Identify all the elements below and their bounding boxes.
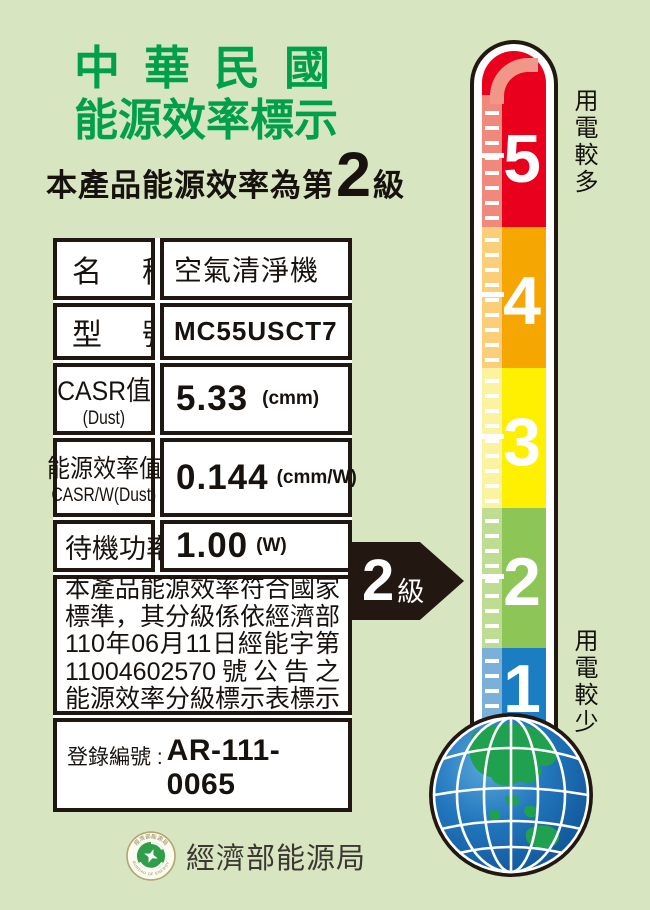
thermometer: 5 4 3 2 bbox=[470, 40, 558, 740]
table-row-eff-label-cell: 能源效率值 CASR/W(Dust) bbox=[53, 438, 155, 517]
notice-line: 110年06月11日經能字第 bbox=[65, 631, 340, 659]
casr-unit: (cmm) bbox=[262, 388, 319, 410]
name-label: 名稱 bbox=[57, 247, 151, 291]
eff-label-sub: CASR/W(Dust) bbox=[52, 485, 157, 507]
grade-statement-prefix: 本產品能源效率為第 bbox=[46, 160, 334, 205]
casr-label: CASR值 bbox=[57, 369, 151, 408]
table-row-name-label-cell: 名稱 bbox=[53, 238, 155, 300]
eff-unit: (cmm/W) bbox=[277, 467, 357, 489]
table-row-eff-value-cell: 0.144 (cmm/W) bbox=[160, 438, 352, 517]
table-row-model-value-cell: MC55USCT7 bbox=[160, 303, 352, 360]
level-5-number: 5 bbox=[500, 125, 544, 193]
spec-table: 名稱 空氣清淨機 型號 MC55USCT7 CASR值 (Dust) 5.33 … bbox=[53, 238, 352, 812]
high-usage-label: 用電較多 bbox=[566, 88, 601, 196]
major-tick bbox=[478, 292, 504, 297]
major-tick bbox=[478, 434, 504, 439]
grade-statement: 本產品能源效率為第 2 級 bbox=[46, 144, 405, 207]
grade-arrow: 2 級 bbox=[348, 542, 464, 620]
tick-marks bbox=[485, 100, 499, 227]
notice-box: 本產品能源效率符合國家 標準，其分級係依經濟部 110年06月11日經能字第 1… bbox=[53, 575, 352, 715]
bureau-of-energy-logo: 經濟部能源局 BUREAU OF ENERGY bbox=[126, 831, 176, 881]
casr-label-sub: (Dust) bbox=[83, 408, 125, 430]
table-row-casr-label-cell: CASR值 (Dust) bbox=[53, 363, 155, 435]
major-tick bbox=[478, 153, 504, 158]
thermometer-border: 5 4 3 2 bbox=[474, 44, 554, 740]
grade-arrow-suffix: 級 bbox=[397, 570, 424, 609]
registration-box: 登錄編號 : AR-111-0065 bbox=[53, 718, 352, 812]
eff-value: 0.144 bbox=[176, 458, 269, 498]
standby-value: 1.00 bbox=[176, 526, 248, 566]
level-4-band: 4 bbox=[482, 227, 546, 368]
model-label: 型號 bbox=[57, 310, 151, 354]
eff-label: 能源效率值 bbox=[47, 449, 162, 485]
table-row-model-label-cell: 型號 bbox=[53, 303, 155, 360]
grade-statement-suffix: 級 bbox=[373, 160, 405, 205]
registration-label: 登錄編號 : bbox=[67, 741, 163, 771]
footer: 經濟部能源局 BUREAU OF ENERGY 經濟部能源局 bbox=[126, 831, 366, 881]
standby-label: 待機功率 bbox=[57, 527, 173, 566]
notice-line: 11004602570號公告之 bbox=[65, 659, 340, 687]
registration-number: AR-111-0065 bbox=[167, 734, 338, 802]
globe-grid bbox=[434, 718, 588, 872]
table-row-standby-value-cell: 1.00 (W) bbox=[160, 520, 352, 572]
level-2-number: 2 bbox=[500, 548, 544, 616]
notice-line: 本產品能源效率符合國家 bbox=[65, 576, 340, 604]
table-row-name-value-cell: 空氣清淨機 bbox=[160, 238, 352, 300]
grade-statement-number: 2 bbox=[336, 144, 371, 207]
level-4-number: 4 bbox=[500, 267, 544, 335]
level-3-number: 3 bbox=[500, 408, 544, 476]
agency-name: 經濟部能源局 bbox=[186, 835, 366, 877]
notice-line: 標準，其分級係依經濟部 bbox=[65, 604, 340, 632]
notice-line: 能源效率分級標示表標示 bbox=[65, 686, 340, 714]
major-tick bbox=[478, 574, 504, 579]
casr-value: 5.33 bbox=[176, 379, 248, 419]
name-value: 空氣清淨機 bbox=[164, 249, 319, 289]
grade-arrow-number: 2 bbox=[362, 552, 394, 610]
table-row-standby-label-cell: 待機功率 bbox=[53, 520, 155, 572]
model-value: MC55USCT7 bbox=[164, 316, 338, 347]
energy-label: 中華民國 能源效率標示 本產品能源效率為第 2 級 名稱 空氣清淨機 型號 MC… bbox=[0, 0, 650, 910]
standby-unit: (W) bbox=[256, 535, 287, 557]
label-title-line2: 能源效率標示 bbox=[74, 84, 338, 148]
tick-marks bbox=[485, 227, 499, 368]
globe-illustration bbox=[425, 709, 597, 881]
table-row-casr-value-cell: 5.33 (cmm) bbox=[160, 363, 352, 435]
